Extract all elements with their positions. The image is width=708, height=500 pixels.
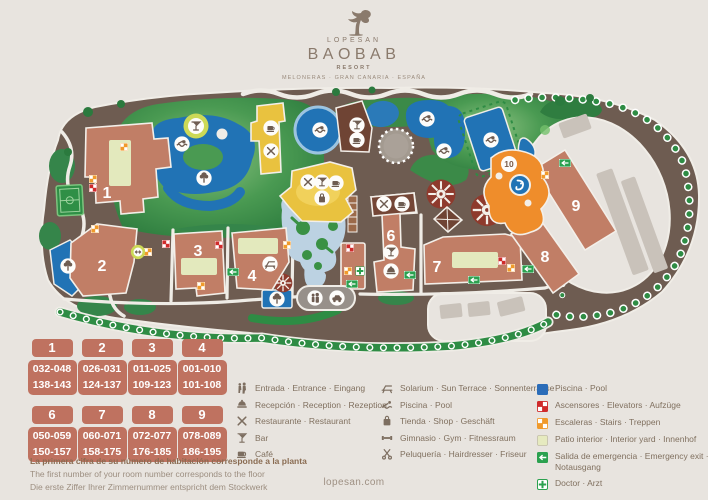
legend-label: Salida de emergencia · Emergency exit · …	[555, 451, 708, 473]
legend-row-entrance: Entrada · Entrance · Eingang	[236, 382, 387, 394]
map-cafe-icon	[328, 175, 343, 190]
legend-label: Ascensores · Elevators · Aufzüge	[555, 400, 708, 411]
room-box-7: 7 060-071158-175	[77, 406, 127, 462]
map-gate-icon	[131, 245, 145, 259]
gym-icon	[381, 432, 393, 444]
legend-row-elevators: Ascensores · Elevators · Aufzüge	[537, 400, 708, 412]
building-10-label: 10	[504, 159, 514, 169]
legend-row-shop: Tienda · Shop · Geschäft	[381, 415, 554, 427]
map-entrance-icon	[307, 290, 322, 305]
legend-row-bar: Bar	[236, 432, 387, 444]
elevators-swatch	[537, 401, 548, 412]
logo-name: BAOBAB	[0, 46, 708, 64]
waterslide-icon	[510, 175, 530, 195]
room-ranges: 011-025109-123	[128, 360, 177, 395]
floor-note: La primera cifra de su número de habitac…	[30, 455, 307, 495]
map-garden-icon	[196, 170, 211, 185]
building-number-badge: 8	[132, 406, 173, 424]
map-pool-icon	[436, 143, 451, 158]
legend-label: Entrada · Entrance · Eingang	[255, 383, 365, 393]
pool-bar-icon	[184, 114, 209, 139]
baobab-tree-icon	[334, 8, 374, 36]
bar-icon	[236, 432, 248, 444]
building-number-badge: 6	[32, 406, 73, 424]
map-cafe-icon	[349, 132, 364, 147]
legend-row-emergency-exit: Salida de emergencia · Emergency exit · …	[537, 451, 708, 473]
map-restaurant-icon	[300, 174, 315, 189]
map-cafe-icon	[394, 196, 409, 211]
room-box-6: 6 050-059150-157	[27, 406, 77, 462]
pool-icon	[381, 399, 393, 411]
legend-label: Patio interior · Interior yard · Innenho…	[555, 434, 708, 445]
building-1-label: 1	[103, 185, 112, 202]
building-3-label: 3	[194, 243, 203, 260]
logo-location: MELONERAS · GRAN CANARIA · ESPAÑA	[0, 75, 708, 81]
legend-row-hairdresser: Peluquería · Hairdresser · Friseur	[381, 448, 554, 460]
building-7-label: 7	[433, 259, 442, 276]
stairs-swatch	[537, 418, 548, 429]
map-cafe-icon	[263, 120, 278, 135]
building-number-badge: 7	[82, 406, 123, 424]
legend-column-2: Solarium · Sun Terrace · Sonnenterrasse …	[381, 382, 554, 465]
building-9-label: 9	[572, 198, 581, 215]
entrance-icon	[236, 382, 248, 394]
legend-label: Bar	[255, 433, 268, 443]
legend-label: Escaleras · Stairs · Treppen	[555, 417, 708, 428]
map-bar-icon	[383, 244, 398, 259]
building-number-badge: 2	[82, 339, 123, 357]
legend-row-restaurant: Restaurante · Restaurant	[236, 415, 387, 427]
building-6-label: 6	[387, 228, 396, 245]
legend-label: Gimnasio · Gym · Fitnessraum	[400, 433, 516, 443]
building-number-badge: 9	[182, 406, 223, 424]
map-taxi-icon	[329, 290, 344, 305]
emergency-exit-swatch	[537, 452, 548, 463]
map-pool-icon	[419, 111, 434, 126]
room-ranges: 032-048138-143	[28, 360, 77, 395]
room-box-2: 2 026-031124-137	[77, 339, 127, 395]
map-bar-icon	[349, 117, 364, 132]
legend-row-patio: Patio interior · Interior yard · Innenho…	[537, 434, 708, 446]
room-number-grid: 1 032-048138-143 2 026-031124-137 3 011-…	[27, 339, 227, 462]
solarium-icon	[381, 382, 393, 394]
building-8-label: 8	[541, 249, 550, 266]
map-reception-icon	[383, 263, 398, 278]
entrance-area	[297, 286, 355, 310]
legend-row-reception: Recepción · Reception · Rezeption	[236, 399, 387, 411]
website-link[interactable]: lopesan.com	[0, 477, 708, 488]
room-box-1: 1 032-048138-143	[27, 339, 77, 395]
legend-label: Solarium · Sun Terrace · Sonnenterrasse	[400, 383, 554, 393]
round-building	[427, 180, 456, 209]
room-box-8: 8 072-077176-185	[127, 406, 177, 462]
courtyard-3	[181, 258, 217, 275]
logo-brand: LOPESAN	[0, 37, 708, 45]
tennis-court	[56, 185, 84, 216]
map-pool-icon	[174, 136, 189, 151]
reception-icon	[236, 399, 248, 411]
patio-swatch	[537, 435, 548, 446]
shop-icon	[381, 415, 393, 427]
logo-type: RESORT	[0, 65, 708, 71]
legend-label: Piscina · Pool	[555, 383, 708, 394]
legend-row-gym: Gimnasio · Gym · Fitnessraum	[381, 432, 554, 444]
legend-label: Restaurante · Restaurant	[255, 416, 350, 426]
room-box-4: 4 001-010101-108	[177, 339, 227, 395]
building-number-badge: 3	[132, 339, 173, 357]
resort-logo: LOPESAN BAOBAB RESORT MELONERAS · GRAN C…	[0, 8, 708, 81]
room-box-3: 3 011-025109-123	[127, 339, 177, 395]
legend-label: Peluquería · Hairdresser · Friseur	[400, 449, 527, 459]
hairdresser-icon	[381, 448, 393, 460]
map-shop-icon	[314, 190, 329, 205]
floor-note-es: La primera cifra de su número de habitac…	[30, 455, 307, 468]
building-number-badge: 1	[32, 339, 73, 357]
room-ranges: 026-031124-137	[78, 360, 127, 395]
legend-row-solarium: Solarium · Sun Terrace · Sonnenterrasse	[381, 382, 554, 394]
room-ranges: 001-010101-108	[178, 360, 227, 395]
map-pool-icon	[483, 132, 498, 147]
building-4-label: 4	[248, 268, 257, 285]
map-solarium-icon	[262, 256, 277, 271]
courtyard-7	[452, 252, 498, 268]
plaza	[379, 129, 413, 163]
restaurant-icon	[236, 415, 248, 427]
legend-column-1: Entrada · Entrance · Eingang Recepción ·…	[236, 382, 387, 465]
map-restaurant-icon	[263, 143, 278, 158]
map-garden-icon	[60, 258, 75, 273]
building-2-label: 2	[98, 258, 107, 275]
pool-swatch	[537, 384, 548, 395]
legend-label: Tienda · Shop · Geschäft	[400, 416, 495, 426]
legend-row-stairs: Escaleras · Stairs · Treppen	[537, 417, 708, 429]
resort-map-page: 10	[0, 0, 708, 500]
courtyard-4	[238, 238, 278, 254]
legend-label: Recepción · Reception · Rezeption	[255, 400, 387, 410]
room-box-9: 9 078-089186-195	[177, 406, 227, 462]
legend-label: Piscina · Pool	[400, 400, 452, 410]
map-garden-icon	[269, 291, 284, 306]
map-bar-icon	[314, 174, 329, 189]
building-number-badge: 4	[182, 339, 223, 357]
map-pool-icon	[312, 122, 327, 137]
legend-row-pool-area: Piscina · Pool	[537, 383, 708, 395]
legend-row-pool: Piscina · Pool	[381, 399, 554, 411]
map-restaurant-icon	[376, 196, 391, 211]
